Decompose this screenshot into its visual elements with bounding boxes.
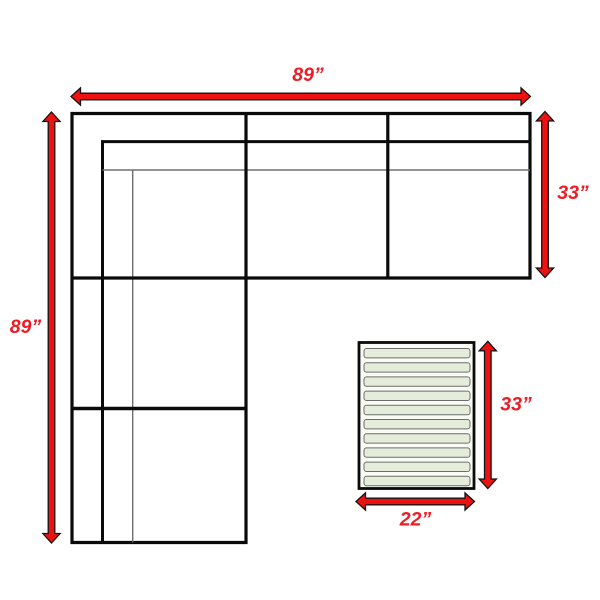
svg-text:22”: 22” <box>399 509 432 531</box>
svg-text:89”: 89” <box>10 316 42 338</box>
svg-text:89”: 89” <box>292 64 324 86</box>
svg-text:33”: 33” <box>557 182 589 204</box>
svg-text:33”: 33” <box>500 394 532 416</box>
